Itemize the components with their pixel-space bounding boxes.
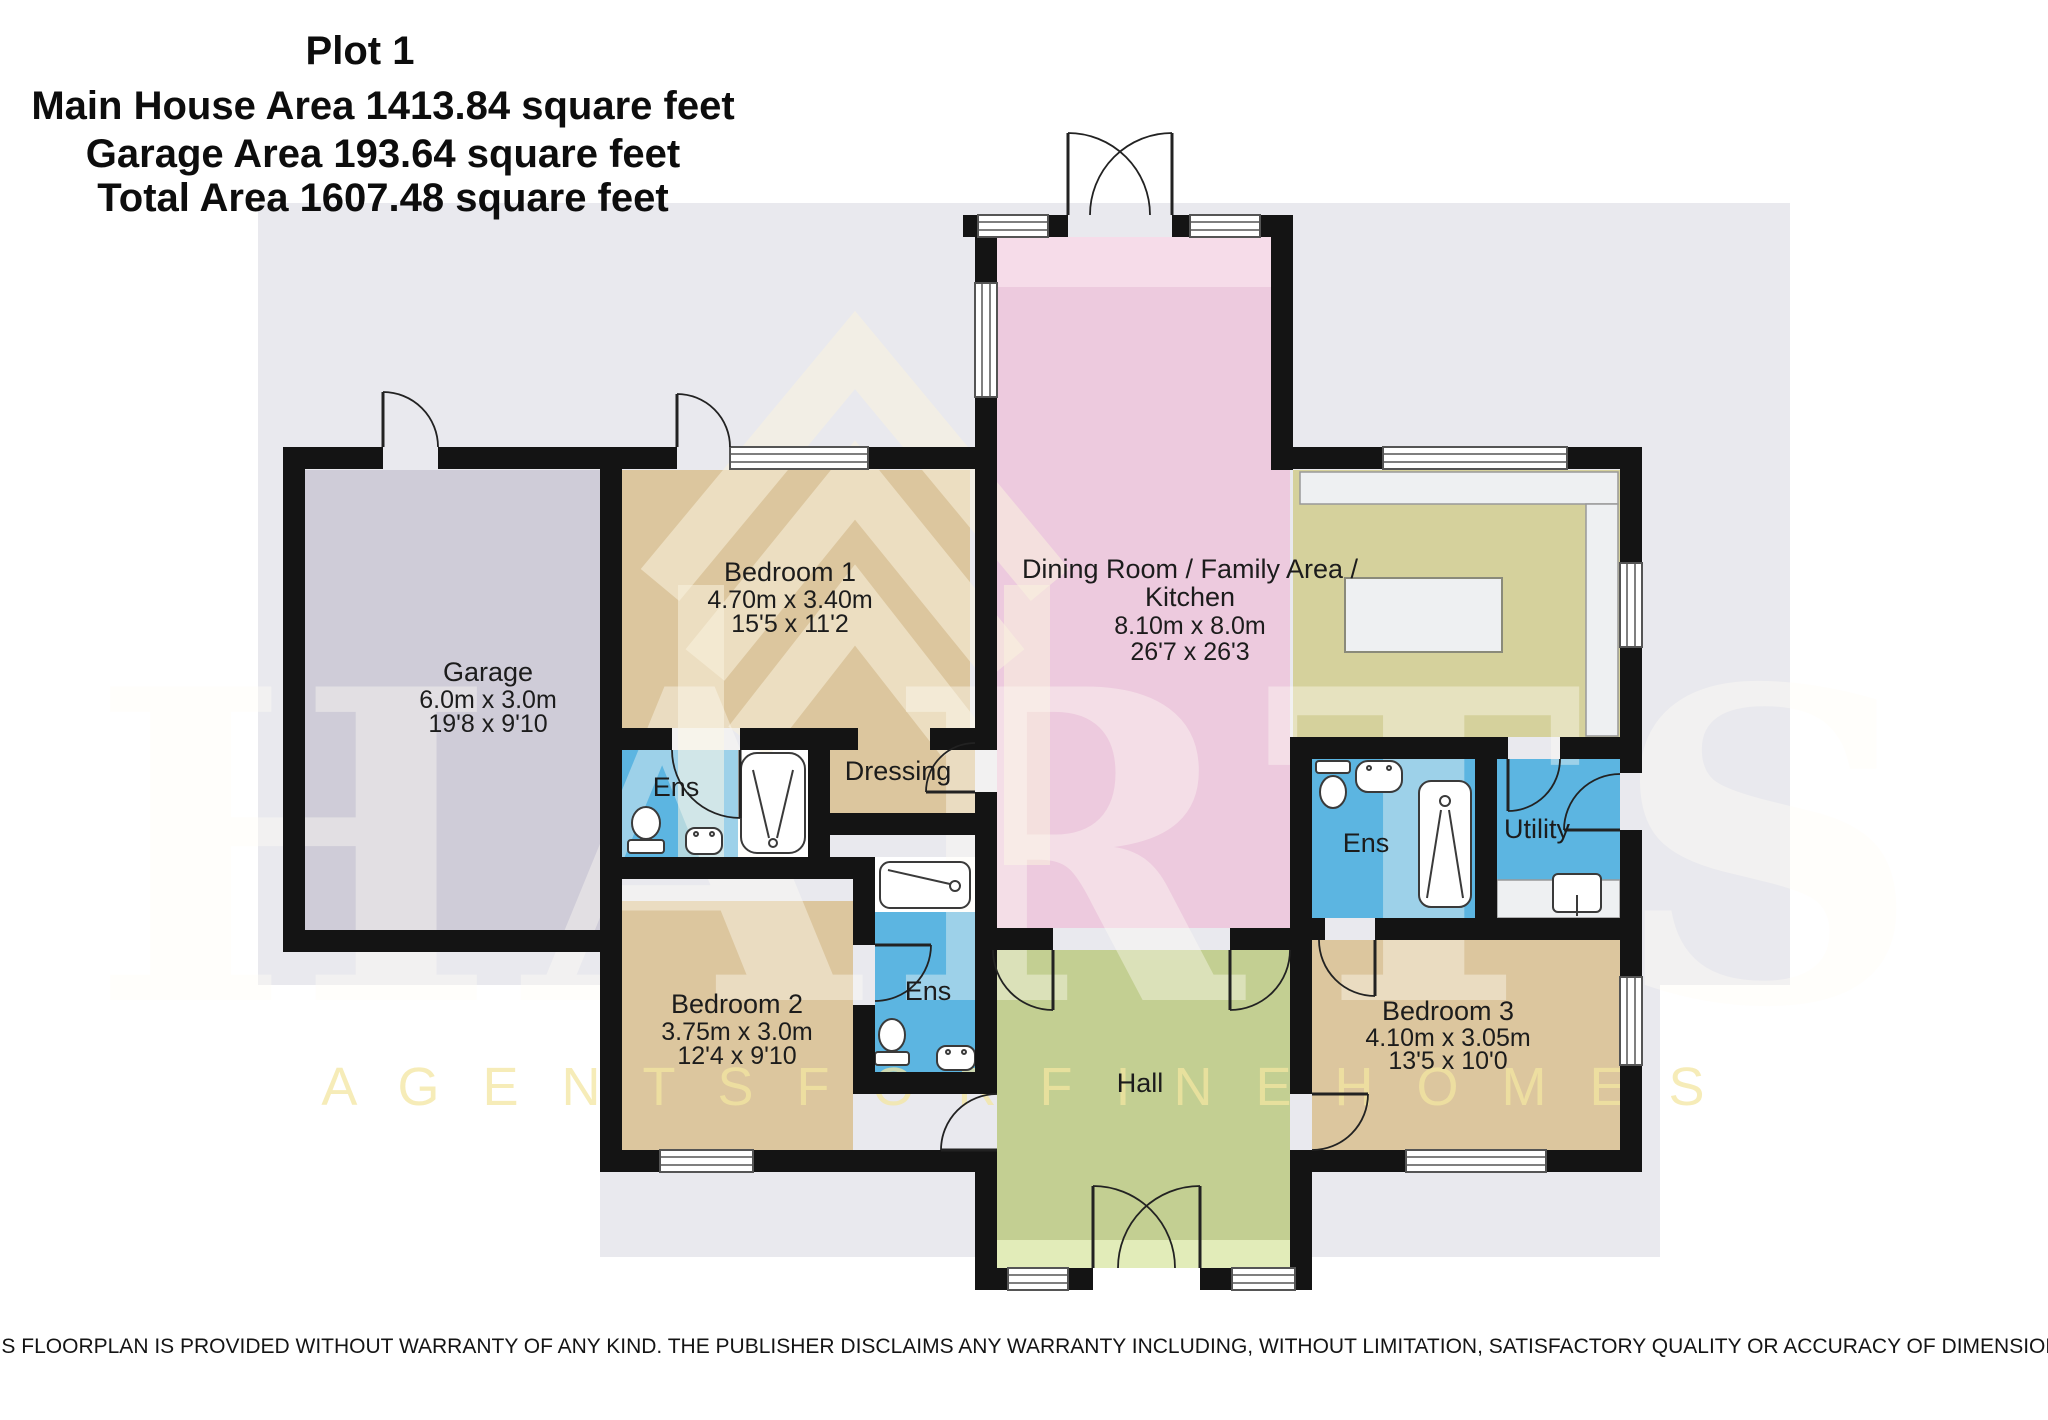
wall-segment — [600, 857, 853, 879]
wall-segment — [1048, 215, 1068, 237]
toilet-icon — [1320, 776, 1346, 808]
toilet-icon — [632, 807, 660, 839]
floorplan-canvas: HARTS A G E N T S F O R F I N E H O M E … — [0, 0, 2048, 1420]
dining-label-line1: Dining Room / Family Area / — [1022, 554, 1359, 584]
sink-icon — [937, 1046, 975, 1070]
dressing-label: Dressing — [845, 756, 952, 786]
wall-segment — [975, 1268, 1008, 1290]
brand-watermark: HARTS — [90, 597, 1950, 1102]
wall-segment — [622, 447, 677, 469]
wall-segment — [1271, 447, 1383, 469]
window — [1232, 1268, 1295, 1290]
dining-dim-imperial: 26'7 x 26'3 — [1130, 638, 1249, 666]
window-frame — [660, 1150, 753, 1172]
window-frame — [1406, 1150, 1546, 1172]
wall-segment — [853, 1072, 997, 1094]
toilet-icon — [1316, 761, 1350, 773]
wall-segment — [868, 447, 997, 469]
ens3-label: Ens — [1343, 828, 1390, 858]
window-frame — [730, 447, 868, 469]
shower-icon — [1440, 796, 1450, 806]
bedroom2-label: Bedroom 2 — [671, 989, 803, 1019]
dining-dim-metric: 8.10m x 8.0m — [1114, 612, 1265, 640]
utility-label: Utility — [1504, 814, 1570, 844]
sink-tap-icon — [710, 832, 714, 836]
window — [975, 283, 997, 397]
wall-segment — [975, 928, 1053, 950]
wall-segment — [1620, 830, 1642, 977]
plot-title: Plot 1 — [306, 29, 415, 73]
wall-segment — [283, 447, 305, 952]
garage-label: Garage — [443, 657, 533, 687]
wall-segment — [963, 215, 978, 237]
wall-segment — [1546, 1150, 1642, 1172]
wall-segment — [740, 728, 858, 750]
hall-label: Hall — [1117, 1068, 1164, 1098]
toilet-icon — [628, 840, 664, 853]
door — [1090, 133, 1172, 215]
window — [1620, 977, 1642, 1065]
window-frame — [1232, 1268, 1295, 1290]
window — [1190, 215, 1260, 237]
sink-icon — [686, 828, 722, 854]
wall-segment — [1290, 737, 1508, 759]
window-frame — [975, 283, 997, 397]
window — [978, 215, 1048, 237]
window — [660, 1150, 753, 1172]
wall-segment — [1260, 215, 1293, 237]
window-frame — [1620, 977, 1642, 1065]
title-block: Plot 1 Main House Area 1413.84 square fe… — [31, 29, 734, 220]
wall-segment — [1068, 1268, 1093, 1290]
kitchen-counter-right — [1586, 504, 1618, 736]
disclaimer: THIS FLOORPLAN IS PROVIDED WITHOUT WARRA… — [0, 1335, 2048, 1358]
wall-segment — [600, 447, 622, 1172]
window-frame — [1620, 563, 1642, 647]
wall-segment — [1475, 759, 1497, 918]
bath-icon — [769, 839, 777, 847]
dining-label-line2: Kitchen — [1145, 582, 1235, 612]
floorplan-page: HARTS A G E N T S F O R F I N E H O M E … — [0, 0, 2048, 1420]
shower-icon — [950, 881, 960, 891]
wall-segment — [930, 728, 997, 750]
toilet-icon — [879, 1019, 905, 1051]
kitchen-island — [1345, 578, 1502, 652]
door — [1068, 133, 1150, 215]
hall-floor-light — [997, 1240, 1290, 1268]
bedroom3-dim-imperial: 13'5 x 10'0 — [1388, 1047, 1507, 1075]
wall-segment — [753, 1150, 975, 1172]
wall-segment — [830, 813, 975, 835]
sink-tap-icon — [946, 1050, 950, 1054]
window — [1008, 1268, 1068, 1290]
kitchen-counter-top — [1300, 472, 1618, 504]
window — [730, 447, 868, 469]
wall-segment — [808, 728, 830, 879]
wall-segment — [853, 857, 875, 945]
bedroom1-dim-imperial: 15'5 x 11'2 — [731, 610, 849, 638]
wall-segment — [622, 728, 672, 750]
window — [1406, 1150, 1546, 1172]
garage-dim-imperial: 19'8 x 9'10 — [428, 710, 547, 738]
wall-segment — [1200, 1268, 1232, 1290]
sink-tap-icon — [1387, 766, 1391, 770]
main-house-area: Main House Area 1413.84 square feet — [31, 84, 734, 128]
total-area: Total Area 1607.48 square feet — [97, 176, 668, 220]
wall-segment — [283, 930, 622, 952]
window-frame — [1383, 447, 1567, 469]
tagline-watermark: A G E N T S F O R F I N E H O M E S — [321, 1057, 1718, 1117]
sink-tap-icon — [962, 1050, 966, 1054]
wall-segment — [438, 447, 622, 469]
bedroom3-label: Bedroom 3 — [1382, 996, 1514, 1026]
window-frame — [978, 215, 1048, 237]
wall-segment — [600, 1150, 660, 1172]
wall-segment — [1290, 950, 1312, 1094]
wall-segment — [1271, 215, 1293, 470]
wall-segment — [1290, 1150, 1406, 1172]
window-frame — [1008, 1268, 1068, 1290]
window — [1620, 563, 1642, 647]
bedroom2-dim-imperial: 12'4 x 9'10 — [677, 1042, 796, 1070]
sink-icon — [1356, 761, 1402, 792]
wall-segment — [283, 447, 383, 469]
wall-segment — [1567, 447, 1642, 469]
garage-area: Garage Area 193.64 square feet — [86, 132, 680, 176]
wall-segment — [1560, 737, 1642, 759]
ens2-label: Ens — [905, 976, 952, 1006]
sink-tap-icon — [1367, 766, 1371, 770]
toilet-icon — [875, 1052, 909, 1065]
window — [1383, 447, 1567, 469]
wall-segment — [1295, 1268, 1312, 1290]
ens1-label: Ens — [653, 772, 700, 802]
wall-segment — [1290, 918, 1325, 940]
wall-segment — [1375, 918, 1642, 940]
sink-tap-icon — [694, 832, 698, 836]
bedroom1-label: Bedroom 1 — [724, 557, 856, 587]
wall-segment — [1172, 215, 1190, 237]
door-swing-arc — [1068, 133, 1150, 215]
dining-floor-light — [997, 237, 1271, 287]
window-frame — [1190, 215, 1260, 237]
door-swing-arc — [1090, 133, 1172, 215]
